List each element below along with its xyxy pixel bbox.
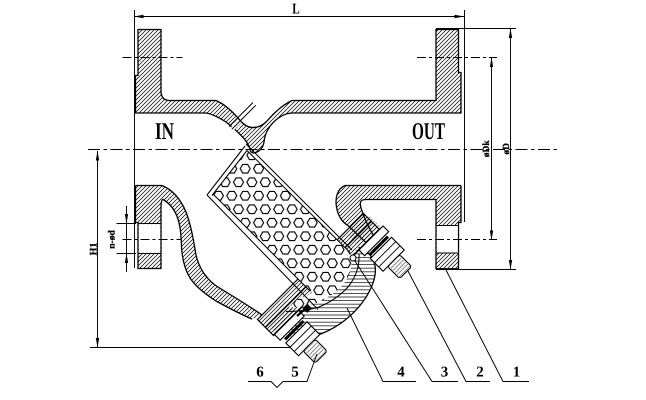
svg-text:øDk: øDk [482,140,492,158]
svg-text:1: 1 [513,365,521,381]
svg-text:6: 6 [256,365,264,381]
svg-text:L: L [292,2,300,18]
svg-text:3: 3 [441,365,449,381]
svg-text:IN: IN [155,119,174,145]
svg-text:n-ød: n-ød [108,230,118,249]
svg-text:øD: øD [502,143,512,155]
svg-text:4: 4 [397,365,405,381]
svg-text:2: 2 [476,365,484,381]
svg-text:OUT: OUT [412,119,445,145]
svg-text:5: 5 [291,365,299,381]
svg-text:H1: H1 [89,243,100,256]
